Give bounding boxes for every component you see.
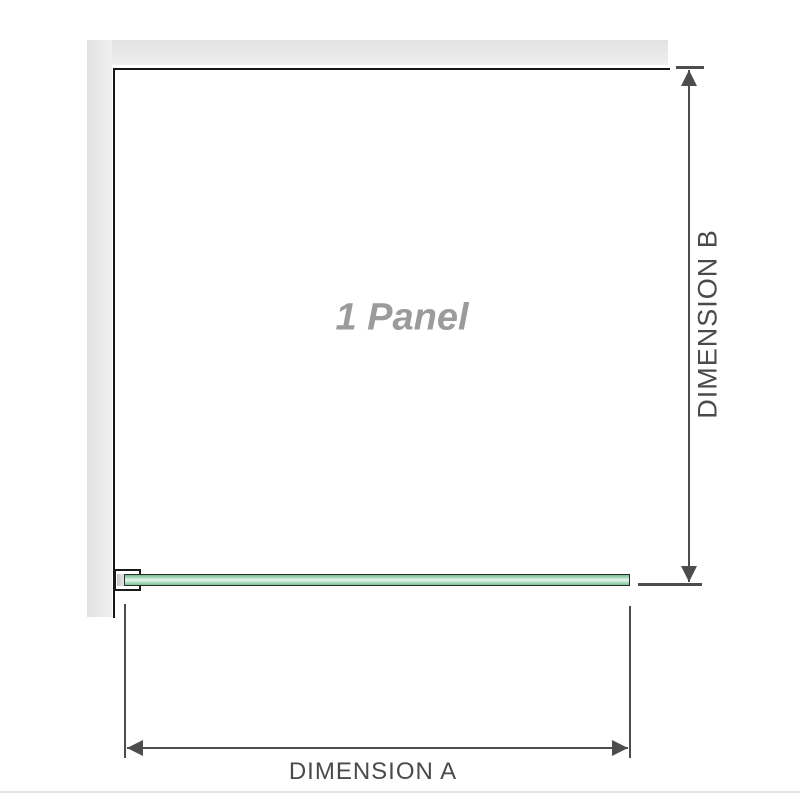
arrow-down-icon [681,566,697,582]
dimension-b-line [688,70,690,582]
panel-count-label: 1 Panel [335,297,468,340]
wall-left-band [87,40,112,617]
dimension-a-label: DIMENSION A [289,758,457,786]
dimension-a-extension-right [629,606,631,758]
shower-panel-dimension-diagram: 1 Panel DIMENSION B DIMENSION A [0,0,800,800]
page-divider [0,791,800,793]
dimension-b-top-tick [676,66,704,69]
panel-outline-left [113,68,115,618]
dimension-b-bottom-tick [638,583,702,586]
dimension-a-line [127,747,628,749]
arrow-left-icon [127,740,143,756]
arrow-up-icon [681,70,697,86]
dimension-a-extension-left [124,604,126,758]
panel-outline-top [113,68,670,70]
arrow-right-icon [612,740,628,756]
dimension-b-label: DIMENSION B [693,229,724,419]
glass-panel-bar [124,574,630,586]
wall-top-band [87,40,668,65]
